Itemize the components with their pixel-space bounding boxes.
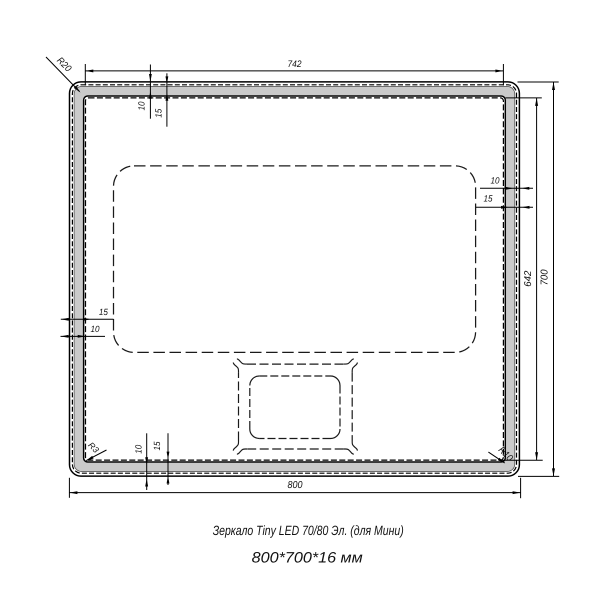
svg-text:700: 700 — [540, 269, 551, 285]
svg-text:10: 10 — [137, 102, 147, 111]
svg-text:800: 800 — [288, 480, 303, 491]
svg-text:15: 15 — [154, 108, 164, 118]
svg-text:10: 10 — [133, 445, 143, 454]
svg-text:800*700*16 мм: 800*700*16 мм — [252, 550, 363, 567]
svg-text:15: 15 — [484, 194, 494, 204]
svg-text:10: 10 — [91, 324, 100, 334]
svg-text:15: 15 — [152, 441, 162, 451]
svg-text:642: 642 — [523, 270, 534, 286]
svg-text:Зеркало Tiny LED 70/80 Эл. (дл: Зеркало Tiny LED 70/80 Эл. (для Мини) — [213, 523, 404, 538]
svg-text:742: 742 — [288, 59, 303, 70]
svg-text:15: 15 — [99, 307, 109, 317]
svg-text:10: 10 — [491, 176, 500, 186]
